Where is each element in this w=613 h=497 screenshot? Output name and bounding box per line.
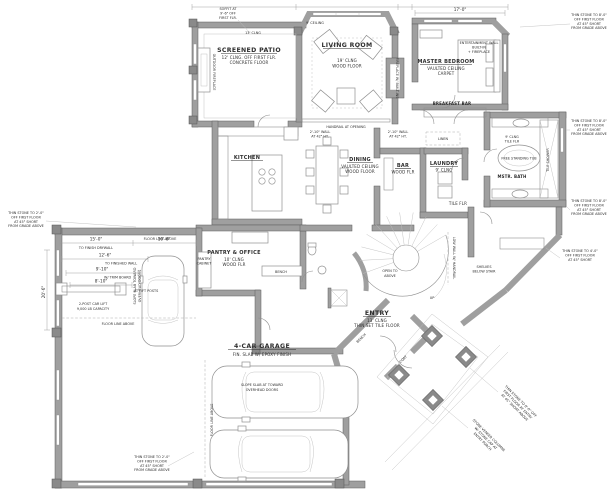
note-shelves: SHELVESBELOW STAIR xyxy=(473,265,497,273)
room-label-entry: ENTRY xyxy=(365,310,389,317)
svg-text:OVERHEAD DOORS: OVERHEAD DOORS xyxy=(138,270,142,303)
room-label-pantry-office: PANTRY & OFFICE xyxy=(207,250,261,256)
svg-text:CONCRETE FLOOR: CONCRETE FLOOR xyxy=(230,60,269,65)
svg-text:WOOD FLR: WOOD FLR xyxy=(391,170,414,175)
washer xyxy=(438,172,452,184)
svg-text:TO FINISHED WALL: TO FINISHED WALL xyxy=(104,262,137,266)
dining-table xyxy=(316,146,338,204)
room-label-living-room: LIVING ROOM xyxy=(321,42,372,49)
dim-9-10: 9'-10" xyxy=(96,267,109,272)
svg-text:FLOOR LINE ABOVE: FLOOR LINE ABOVE xyxy=(102,322,135,326)
note-right-mid: THIN STONE TO 8'-0"OFF FIRST FLOORAT 45°… xyxy=(570,119,607,136)
svg-text:WOOD FLR: WOOD FLR xyxy=(222,262,245,267)
label-tub: FREE STANDING TUB xyxy=(501,157,537,161)
chair xyxy=(360,90,383,112)
svg-text:UP: UP xyxy=(430,296,435,300)
dim-8-10: 8'-10" xyxy=(95,279,108,284)
svg-text:SLOPE SLAB TOWARD: SLOPE SLAB TOWARD xyxy=(133,267,137,304)
svg-text:TILE FLR: TILE FLR xyxy=(448,201,467,206)
svg-text:13' CLNG: 13' CLNG xyxy=(245,31,261,35)
dim-15-0: 15'-0" xyxy=(90,237,103,242)
room-label-kitchen: KITCHEN xyxy=(234,155,260,161)
svg-text:AT LIFT POSTS: AT LIFT POSTS xyxy=(134,289,158,293)
note-bottom-left: THIN STONE TO 2'-0"OFF FIRST FLOORAT 45°… xyxy=(133,455,170,472)
dryer xyxy=(438,186,452,198)
svg-text:CARPET: CARPET xyxy=(438,71,455,76)
svg-text:THIN SET TILE FLOOR: THIN SET TILE FLOOR xyxy=(353,323,400,328)
dim-17-0: 17'-0" xyxy=(454,7,467,12)
note-porch-a: THIN STONE TO 8'-0" OFFFIRST FLOOR AT EN… xyxy=(497,384,537,424)
note-soffit: SOFFIT AT9'-6" OFFFIRST FLR. xyxy=(219,7,237,20)
room-label-screened-patio: SCREENED PATIO xyxy=(217,47,281,54)
svg-text:WOOD FLOOR: WOOD FLOOR xyxy=(345,169,375,174)
svg-text:AT 42" HT.: AT 42" HT. xyxy=(389,135,407,139)
label-handrail: HANDRAIL AT OPENING xyxy=(326,125,366,129)
svg-text:AT 42" HT.: AT 42" HT. xyxy=(311,135,329,139)
svg-text:9' CEILING: 9' CEILING xyxy=(306,21,324,25)
dim-12-6: 12'-6" xyxy=(99,253,112,258)
label-tile-shower: TILE SHOWER xyxy=(546,148,550,173)
svg-text:ABOVE: ABOVE xyxy=(384,274,396,278)
note-wing: THIN STONE TO 4'-0"OFF FIRST FLOORAT 45°… xyxy=(561,249,598,262)
note-pantry-cabinet: PANTRYCABINET xyxy=(197,257,213,265)
dim-10-6: 10'-6" xyxy=(158,237,171,242)
room-label-bar: BAR xyxy=(397,163,409,169)
room-label-laundry: LAUNDRY xyxy=(430,161,458,167)
svg-text:TILE FLR: TILE FLR xyxy=(504,140,520,144)
chair xyxy=(312,90,335,112)
powder-sink xyxy=(318,266,326,274)
label-breakfast-bar: BREAKFAST BAR xyxy=(433,101,472,106)
window-seat xyxy=(500,238,544,249)
refrigerator xyxy=(284,127,298,140)
svg-text:TO FINISH DRYWALL: TO FINISH DRYWALL xyxy=(78,246,113,250)
label-fireplace: FIREPLACE W/ BUILT-INS xyxy=(395,58,399,99)
car-top-view xyxy=(139,256,187,346)
svg-text:OUTDOOR FIREPLACE: OUTDOOR FIREPLACE xyxy=(212,54,216,91)
svg-text:9,000 LB CAPACITY: 9,000 LB CAPACITY xyxy=(77,307,110,311)
svg-text:2'-10" WALL: 2'-10" WALL xyxy=(310,130,331,134)
svg-text:SLOPE SLAB AT TOWARD: SLOPE SLAB AT TOWARD xyxy=(241,383,283,387)
label-bench: BENCH xyxy=(275,270,287,274)
car-top-view xyxy=(212,362,358,422)
room-label-master-bedroom: MASTER BEDROOM xyxy=(417,59,474,65)
room-label-dining: DINING xyxy=(349,157,371,163)
svg-text:W/ TRIM BOARD: W/ TRIM BOARD xyxy=(104,276,132,280)
svg-text:19' CLNG: 19' CLNG xyxy=(337,58,357,63)
office-desk xyxy=(232,232,268,243)
label-linen: LINEN xyxy=(438,137,449,141)
sink xyxy=(512,190,528,198)
svg-text:WOOD FLOOR: WOOD FLOOR xyxy=(332,64,362,69)
svg-text:9' CLNG: 9' CLNG xyxy=(505,135,519,139)
lift-post xyxy=(56,283,67,295)
svg-text:OPEN TO: OPEN TO xyxy=(382,269,398,273)
svg-text:LOW WALL W/ HANDRAIL: LOW WALL W/ HANDRAIL xyxy=(452,237,456,279)
floor-plan-canvas: SCREENED PATIO 12' CLNG. OFF FIRST FLR. … xyxy=(0,0,613,497)
svg-text:FIN. SLAB W/ EPOXY FINISH: FIN. SLAB W/ EPOXY FINISH xyxy=(233,352,291,357)
svg-text:2'-10" WALL: 2'-10" WALL xyxy=(388,130,409,134)
floor-plan-drawing: SCREENED PATIO 12' CLNG. OFF FIRST FLR. … xyxy=(0,0,613,497)
sink xyxy=(513,119,529,127)
svg-text:OVERHEAD DOORS: OVERHEAD DOORS xyxy=(246,388,279,392)
svg-text:FLOOR LINE ABOVE: FLOOR LINE ABOVE xyxy=(210,404,214,437)
room-label-master-bath: MSTR. BATH xyxy=(497,174,526,179)
dim-20-6: 20'-6" xyxy=(41,286,46,299)
note-left-wall: THIN STONE TO 2'-0"OFF FIRST FLOORAT 45°… xyxy=(7,211,44,228)
patio-grill xyxy=(198,48,210,92)
label-car-lift: 2-POST CAR LIFT xyxy=(79,302,108,306)
note-porch-b: STONE VENEER COLUMNSW/ STONE CAP ATENTRY… xyxy=(465,418,505,458)
svg-text:9' CLNG: 9' CLNG xyxy=(435,168,452,173)
svg-text:COAT: COAT xyxy=(399,354,409,364)
dresser xyxy=(420,30,442,38)
car-top-view xyxy=(210,426,348,481)
note-right-low: THIN STONE TO 8'-0"OFF FIRST FLOORAT 45°… xyxy=(570,199,607,216)
room-label-garage: 4-CAR GARAGE xyxy=(234,343,290,350)
kitchen-island xyxy=(252,155,282,211)
coffee-table xyxy=(337,88,355,104)
note-right-top: THIN STONE TO 8'-0"OFF FIRST FLOORAT 45°… xyxy=(570,13,607,30)
